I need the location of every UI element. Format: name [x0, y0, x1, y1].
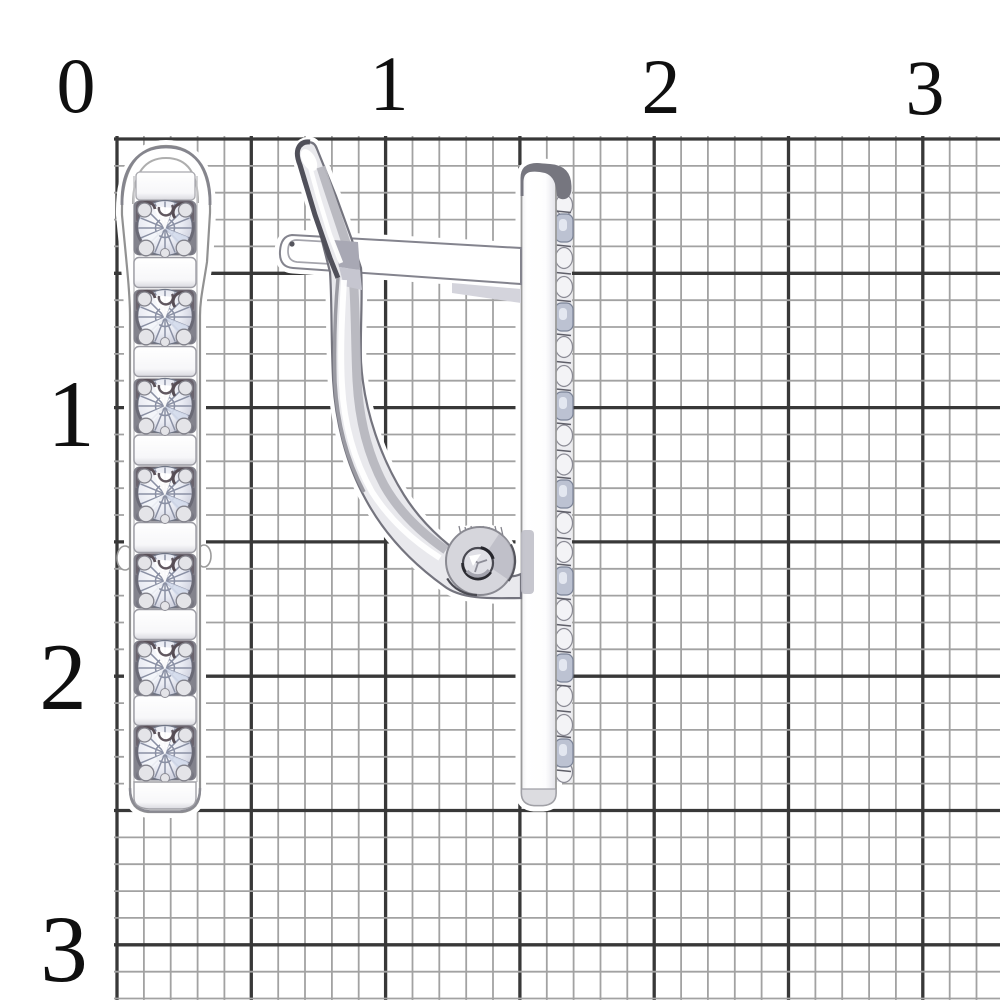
svg-text:1: 1 [47, 361, 95, 467]
svg-text:2: 2 [39, 624, 87, 730]
svg-text:3: 3 [40, 896, 88, 1000]
svg-text:2: 2 [642, 43, 681, 130]
svg-text:3: 3 [906, 44, 945, 131]
svg-text:1: 1 [370, 40, 409, 127]
svg-text:0: 0 [57, 42, 96, 129]
